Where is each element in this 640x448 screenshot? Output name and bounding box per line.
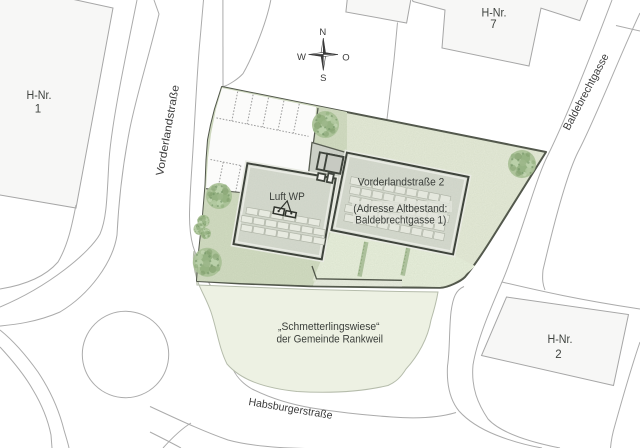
svg-text:7: 7 xyxy=(490,19,496,31)
svg-text:1: 1 xyxy=(35,104,41,116)
svg-text:N: N xyxy=(319,27,326,38)
svg-text:(Adresse Altbestand:: (Adresse Altbestand: xyxy=(353,203,447,215)
svg-text:Luft WP: Luft WP xyxy=(269,191,305,203)
svg-text:W: W xyxy=(297,52,306,63)
svg-text:H-Nr.: H-Nr. xyxy=(482,8,507,20)
svg-text:2: 2 xyxy=(555,349,561,361)
svg-text:H-Nr.: H-Nr. xyxy=(27,90,52,102)
svg-text:H-Nr.: H-Nr. xyxy=(548,334,573,346)
svg-text:Baldebrechtgasse 1): Baldebrechtgasse 1) xyxy=(355,215,446,227)
svg-text:„Schmetterlingswiese“: „Schmetterlingswiese“ xyxy=(278,321,380,333)
svg-text:O: O xyxy=(342,53,349,64)
svg-text:S: S xyxy=(320,73,326,84)
svg-text:der Gemeinde Rankweil: der Gemeinde Rankweil xyxy=(276,334,383,346)
svg-text:Vorderlandstraße 2: Vorderlandstraße 2 xyxy=(358,177,445,189)
